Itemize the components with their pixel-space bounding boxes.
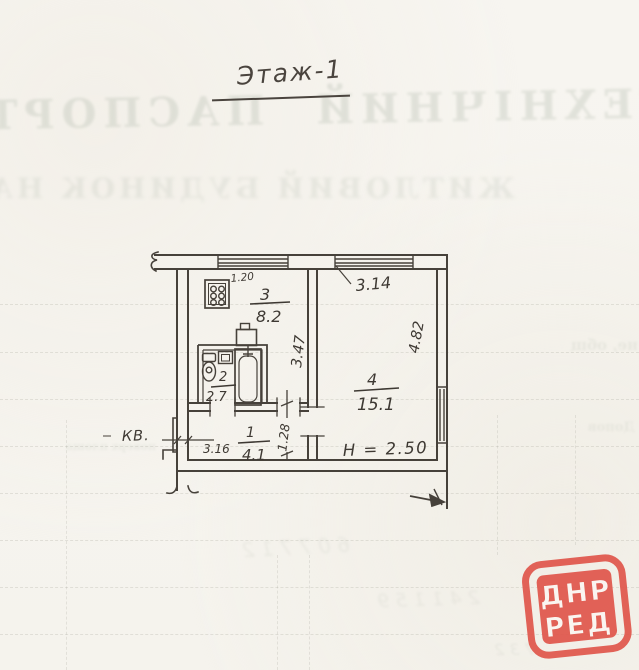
entrance-arrow-icon: [410, 489, 444, 506]
stove-icon: [205, 280, 229, 308]
dim-kitchen-depth: 3.47: [289, 334, 309, 369]
room-3-number: 3: [260, 285, 270, 304]
kitchen-sink-icon: [237, 324, 257, 358]
room-1-number: 1: [246, 425, 255, 441]
washbasin-icon: [219, 352, 233, 364]
dim-hall-width: 3.16: [203, 442, 230, 456]
toilet-icon: [203, 354, 216, 382]
room-4-number: 4: [367, 370, 377, 389]
room-2-area: 2.7: [206, 390, 227, 405]
dim-room4-window: 3.14: [355, 273, 392, 295]
dim-room4-depth: 4.82: [406, 320, 427, 355]
walls: [151, 252, 447, 508]
room-2-number: 2: [219, 370, 227, 385]
room-3-area: 8.2: [256, 307, 281, 326]
stamp-graphic: ДНР РЕД: [519, 551, 635, 666]
stamp-text-line2: РЕД: [543, 606, 614, 644]
dim-stove-wall: 1.20: [230, 271, 255, 285]
registry-stamp: ДНР РЕД: [519, 551, 635, 666]
room-1-area: 4.1: [242, 446, 266, 464]
room-4-area: 15.1: [357, 395, 395, 415]
ceiling-height-note: H = 2.50: [342, 438, 428, 460]
bathtub-icon: [235, 349, 261, 405]
apartment-label: КВ.: [122, 428, 150, 445]
dim-hall-door: 1.28: [274, 423, 292, 452]
